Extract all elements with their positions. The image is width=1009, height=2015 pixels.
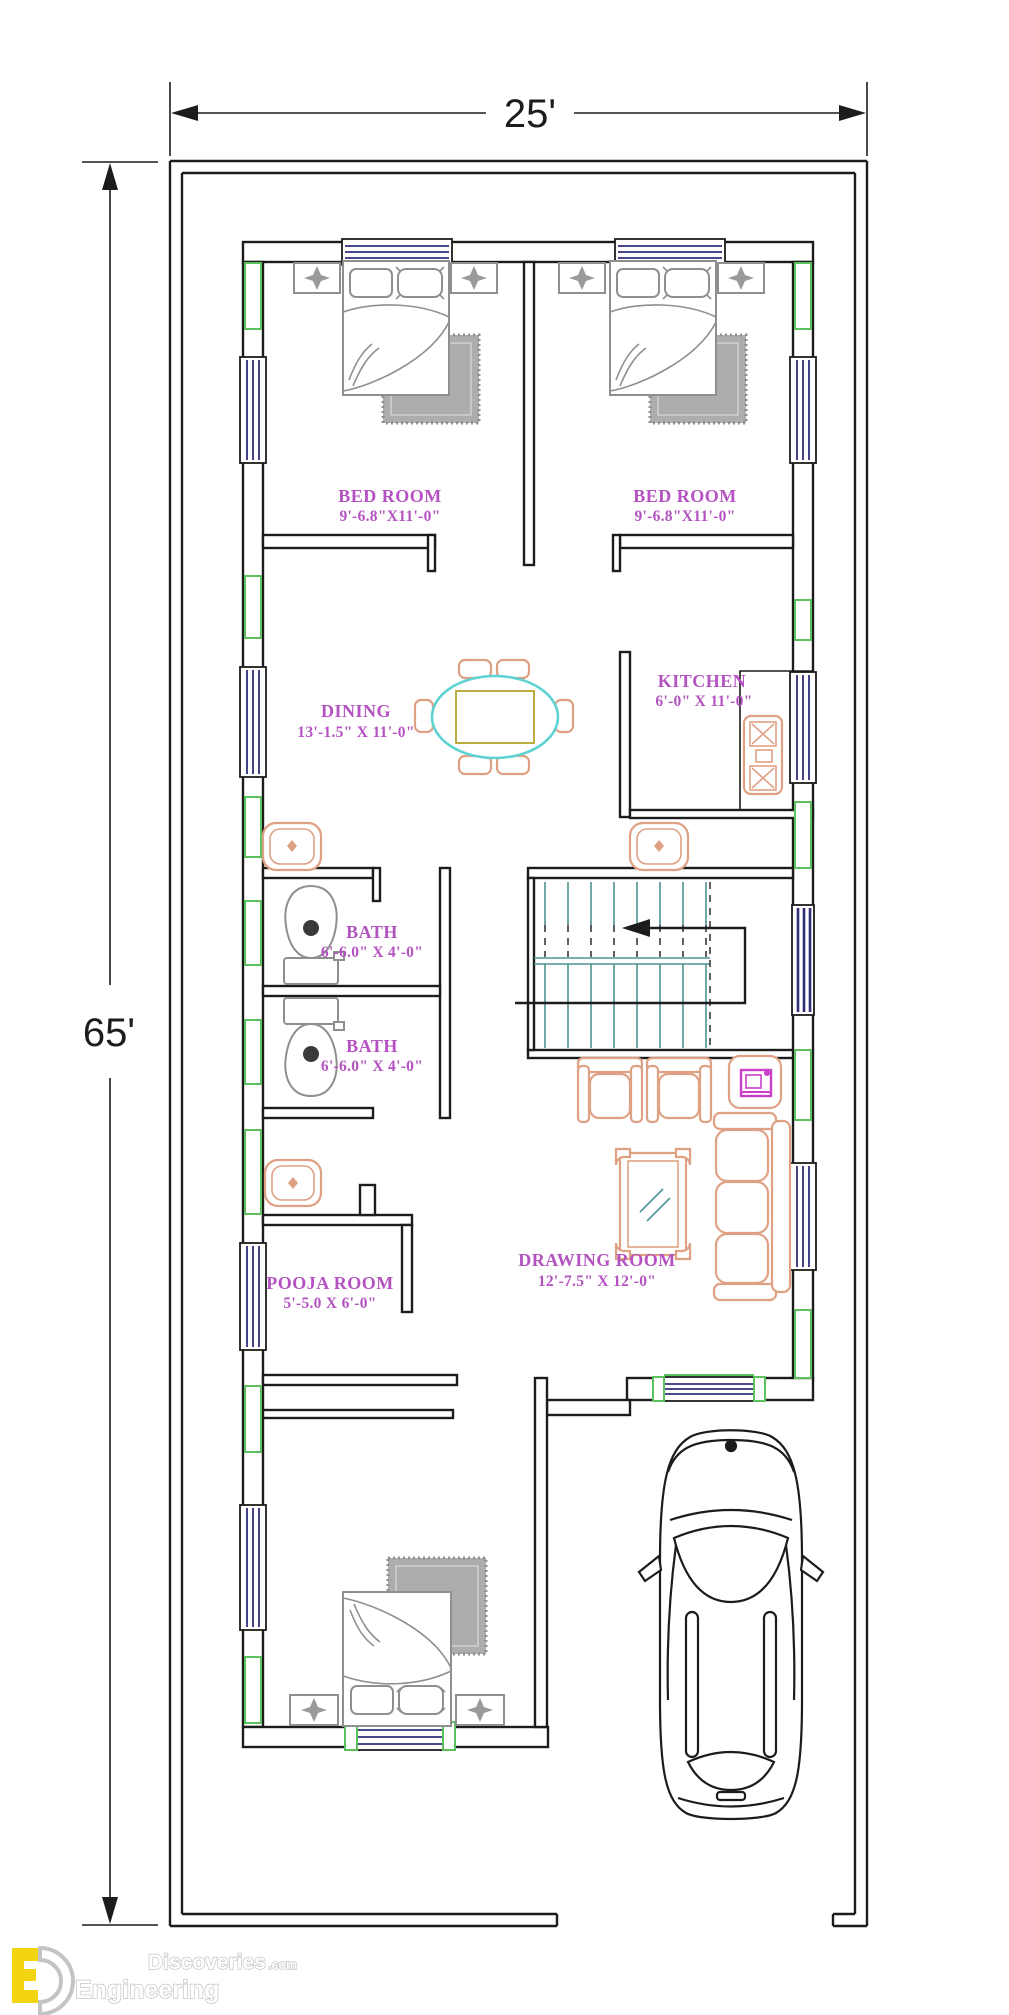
floor-plan-page: 25' 65' <box>0 0 1009 2015</box>
bedroom2-label: BED ROOM <box>633 486 737 506</box>
bedside-table-symbol <box>290 1695 338 1725</box>
bed-symbol <box>343 261 449 395</box>
sofa-symbol <box>714 1113 790 1300</box>
armchair-symbol <box>647 1058 711 1122</box>
bath1-label: BATH <box>346 922 398 942</box>
sink-symbol <box>265 1160 321 1206</box>
toilet-symbol <box>284 886 344 984</box>
drawing-label: DRAWING ROOM <box>518 1250 676 1270</box>
dimension-top-25ft: 25' <box>170 82 867 156</box>
bedroom3-furniture <box>290 1558 504 1726</box>
sink-symbol <box>630 823 688 870</box>
window-pooja-left <box>240 1243 266 1350</box>
car-symbol <box>639 1430 823 1819</box>
pooja-label: POOJA ROOM <box>266 1273 394 1293</box>
dimension-left-65ft: 65' <box>82 162 158 1925</box>
bedside-table-symbol <box>294 263 340 293</box>
plot-height-dimension: 65' <box>83 1011 135 1055</box>
sink-symbol <box>263 823 321 870</box>
center-table-symbol <box>616 1149 690 1259</box>
bedside-table-symbol <box>451 263 497 293</box>
kitchen-label: KITCHEN <box>658 671 747 691</box>
tv-unit-symbol <box>729 1056 781 1108</box>
window-stairs-right <box>792 905 814 1015</box>
toilet-symbol <box>284 998 344 1096</box>
bath2-label: BATH <box>346 1036 398 1056</box>
dining-table-symbol <box>415 660 573 774</box>
bedside-table-symbol <box>718 263 764 293</box>
bedside-table-symbol <box>559 263 605 293</box>
bedroom2-size: 9'-6.8"X11'-0" <box>634 508 735 525</box>
plot-width-dimension: 25' <box>504 92 556 136</box>
stairs-symbol <box>515 882 745 1048</box>
logo-word-discoveries: Discoveries <box>148 1951 266 1974</box>
pooja-size: 5'-5.0 X 6'-0" <box>283 1295 376 1312</box>
window-bedroom1-left <box>240 357 266 463</box>
logo-word-dotcom: .com <box>268 1958 297 1972</box>
bedside-table-symbol <box>456 1695 504 1725</box>
bath2-size: 6'-6.0" X 4'-0" <box>321 1058 423 1075</box>
bedroom1-furniture <box>294 261 497 423</box>
window-bedroom2-right <box>790 357 816 463</box>
window-bedroom3-left <box>240 1505 266 1630</box>
bed-symbol <box>610 261 716 395</box>
bedroom1-size: 9'-6.8"X11'-0" <box>339 508 440 525</box>
window-entrance <box>653 1375 765 1401</box>
stove-symbol <box>744 716 782 794</box>
bed-symbol <box>343 1592 451 1726</box>
dining-label: DINING <box>321 701 391 721</box>
window-kitchen-right <box>790 672 816 783</box>
window-dining-left <box>240 667 266 777</box>
kitchen-size: 6'-0" X 11'-0" <box>655 693 752 710</box>
brand-logo: Discoveries .com Engineering <box>12 1948 297 2014</box>
bath1-size: 6'-6.0" X 4'-0" <box>321 944 423 961</box>
drawing-size: 12'-7.5" X 12'-0" <box>538 1273 656 1290</box>
armchair-symbol <box>578 1058 642 1122</box>
logo-monogram-icon <box>12 1948 73 2014</box>
bedroom1-label: BED ROOM <box>338 486 442 506</box>
window-drawing-right <box>790 1163 816 1270</box>
logo-word-engineering: Engineering <box>75 1976 219 2004</box>
bedroom2-furniture <box>559 261 764 423</box>
floor-plan-drawing: 25' 65' <box>0 0 1009 2015</box>
dining-size: 13'-1.5" X 11'-0" <box>297 724 414 741</box>
